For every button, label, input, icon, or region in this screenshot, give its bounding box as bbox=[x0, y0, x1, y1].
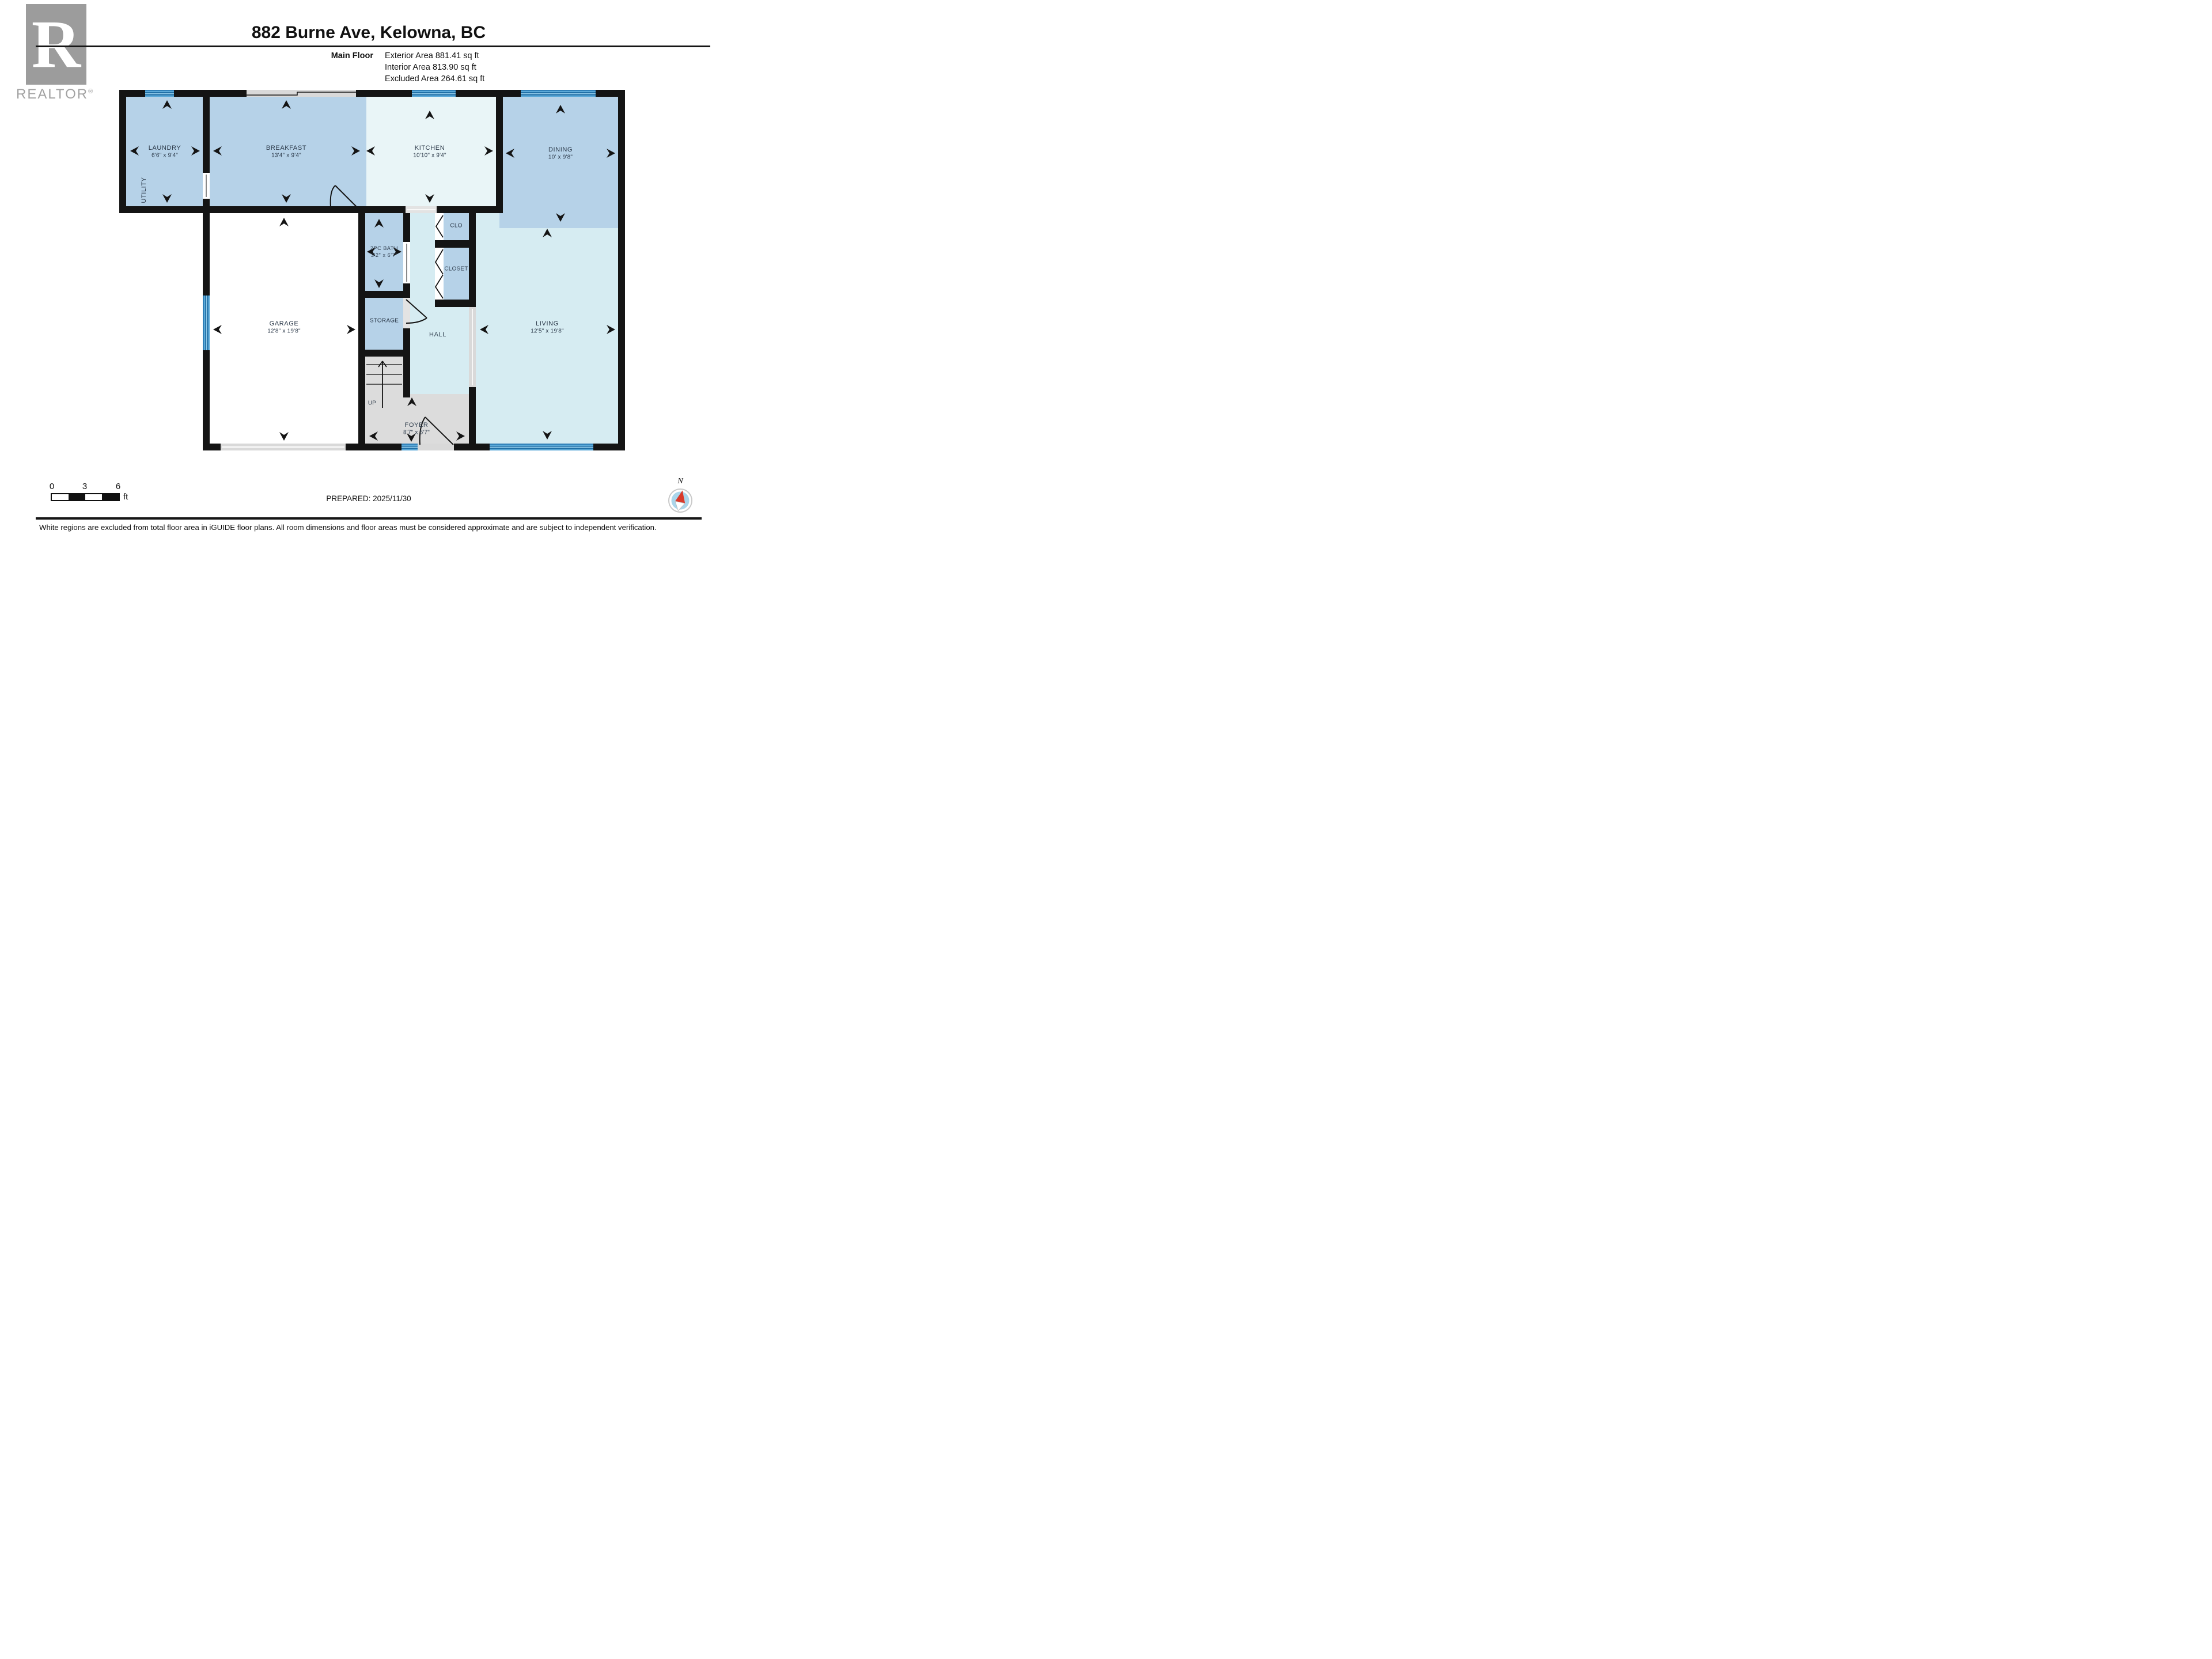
room-label-foyer: FOYER bbox=[405, 422, 429, 429]
floor-label: Main Floor bbox=[258, 51, 373, 60]
room-kitchen-fill bbox=[363, 90, 499, 213]
window-dining bbox=[521, 90, 596, 97]
window-laundry bbox=[145, 90, 174, 97]
realtor-logo: R bbox=[26, 4, 86, 85]
disclaimer-text: White regions are excluded from total fl… bbox=[39, 523, 707, 532]
room-label-living: LIVING bbox=[536, 320, 559, 327]
room-label-closet: CLOSET bbox=[444, 266, 468, 272]
wall-closet-right bbox=[469, 206, 476, 307]
room-label-garage: GARAGE bbox=[270, 320, 299, 327]
room-dims-breakfast: 13'4" x 9'4" bbox=[271, 153, 301, 159]
room-label-clo: CLO bbox=[450, 223, 462, 229]
floor-plan-page: R REALTOR® 882 Burne Ave, Kelowna, BC Ma… bbox=[0, 0, 737, 553]
window-garage bbox=[203, 296, 210, 350]
room-dims-foyer: 8'7" x 5'7" bbox=[403, 430, 430, 436]
wall-right bbox=[618, 90, 625, 450]
clo-bifold-strip bbox=[435, 210, 444, 240]
room-dims-laundry: 6'6" x 9'4" bbox=[151, 153, 178, 159]
wall-row-bottom bbox=[119, 206, 503, 213]
realtor-word-text: REALTOR bbox=[16, 86, 88, 102]
wall-garage-right bbox=[358, 206, 365, 450]
scale-tick-0: 0 bbox=[50, 482, 54, 491]
exterior-area: Exterior Area 881.41 sq ft bbox=[385, 51, 479, 60]
room-dims-bath: 3'2" x 6'7" bbox=[371, 252, 397, 258]
compass-north-label: N bbox=[677, 477, 683, 486]
wall-closet-bottom bbox=[435, 300, 476, 307]
room-label-utility: UTILITY bbox=[141, 177, 147, 203]
wall-bath-bottom bbox=[365, 291, 410, 298]
scale-tick-3: 3 bbox=[82, 482, 87, 491]
hall-living-opening bbox=[469, 307, 476, 387]
room-dims-garage: 12'8" x 19'8" bbox=[267, 328, 300, 335]
window-living bbox=[490, 444, 593, 450]
window-kitchen bbox=[412, 90, 456, 97]
room-label-bath: 2PC BATH bbox=[370, 245, 398, 251]
garage-door-opening bbox=[221, 444, 346, 450]
realtor-logo-word: REALTOR® bbox=[16, 86, 94, 103]
room-dims-dining: 10' x 9'8" bbox=[548, 154, 573, 161]
room-closet-fill bbox=[444, 248, 469, 300]
room-label-kitchen: KITCHEN bbox=[415, 145, 445, 151]
wall-foyer-living bbox=[469, 387, 476, 450]
stairs-fill bbox=[363, 353, 407, 394]
wall-clo-closet bbox=[435, 240, 469, 248]
room-dims-kitchen: 10'10" x 9'4" bbox=[413, 153, 446, 159]
interior-area: Interior Area 813.90 sq ft bbox=[385, 63, 476, 72]
stairs-up-label: UP bbox=[368, 400, 376, 407]
window-foyer bbox=[402, 444, 418, 450]
bath-door-gap bbox=[403, 242, 410, 283]
room-label-laundry: LAUNDRY bbox=[149, 145, 181, 151]
front-door-opening bbox=[418, 444, 454, 450]
room-dims-living: 12'5" x 19'8" bbox=[531, 328, 563, 335]
wall-stairs-right bbox=[403, 354, 410, 397]
storage-door-opening bbox=[403, 298, 410, 328]
room-foyer-fill bbox=[363, 394, 472, 447]
room-breakfast-fill bbox=[206, 90, 366, 213]
excluded-area: Excluded Area 264.61 sq ft bbox=[385, 74, 484, 84]
closet-bifold-strip bbox=[435, 248, 444, 300]
room-label-storage: STORAGE bbox=[370, 318, 399, 324]
registered-mark: ® bbox=[88, 88, 94, 95]
room-label-hall: HALL bbox=[429, 331, 446, 338]
room-label-breakfast: BREAKFAST bbox=[266, 145, 306, 151]
opening-breakfast-patio bbox=[247, 90, 356, 97]
wall-left-upper bbox=[119, 90, 126, 213]
footer-divider bbox=[36, 517, 702, 520]
room-laundry-fill bbox=[119, 90, 210, 213]
wall-kitchen-dining bbox=[496, 90, 503, 213]
laundry-door-gap bbox=[203, 173, 210, 199]
opening-kitchen-hall bbox=[406, 206, 437, 213]
room-label-dining: DINING bbox=[548, 146, 573, 153]
title-divider bbox=[36, 46, 710, 47]
prepared-date: PREPARED: 2025/11/30 bbox=[0, 494, 737, 503]
scale-tick-6: 6 bbox=[116, 482, 120, 491]
page-title: 882 Burne Ave, Kelowna, BC bbox=[0, 23, 737, 43]
realtor-logo-letter: R bbox=[32, 10, 81, 78]
